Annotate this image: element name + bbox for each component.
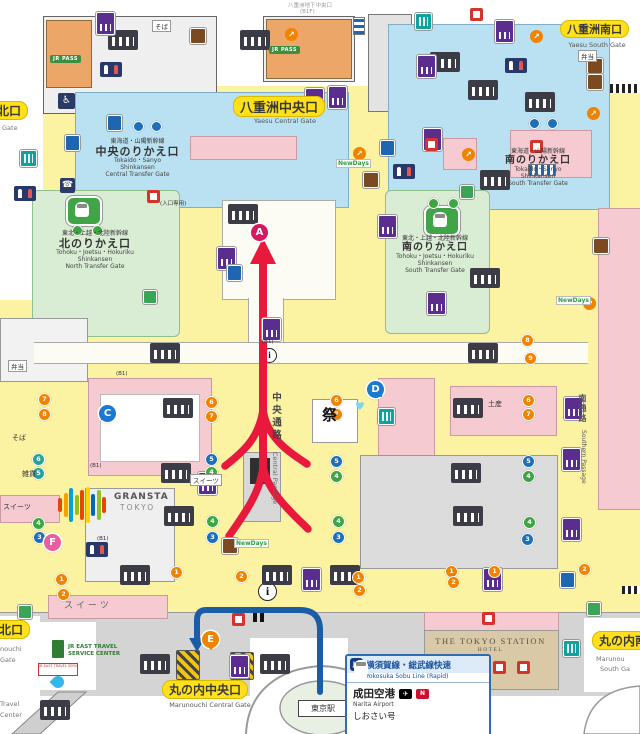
travel-center-logo: JR-EAST TRAVEL SERVICE CENTER bbox=[38, 663, 78, 676]
stairs-icon bbox=[451, 463, 481, 483]
restroom-icon bbox=[14, 186, 36, 201]
stairs-icon bbox=[525, 92, 555, 112]
destination-jp: 成田空港 bbox=[353, 686, 395, 701]
map-label: NewDays bbox=[336, 159, 371, 168]
map-label: スイーツ bbox=[190, 474, 222, 486]
platform-number-badge: 4 bbox=[330, 470, 343, 483]
gate-label-yaesu-north: 北口 bbox=[0, 101, 28, 120]
shop-icon bbox=[232, 613, 245, 626]
route-red-arrowhead bbox=[250, 238, 276, 264]
platform-stairs-icon bbox=[230, 655, 249, 678]
map-label: NewDays bbox=[234, 539, 269, 548]
coin-locker-icon bbox=[563, 640, 580, 657]
gate-label-marunouchi-north-en2: Gate bbox=[0, 656, 16, 664]
line-name-en: Yokosuka Sobu Line (Rapid) bbox=[347, 673, 489, 683]
tokyo-station-dome-label: 東京駅 bbox=[298, 700, 348, 717]
stairs-icon bbox=[228, 204, 258, 224]
stairs-icon bbox=[161, 463, 191, 483]
shop-icon bbox=[493, 661, 506, 674]
platform-stairs-icon bbox=[96, 12, 115, 35]
airplane-icon: ✈ bbox=[399, 689, 412, 699]
platform-number-badge: 2 bbox=[578, 563, 591, 576]
platform-stairs-icon bbox=[302, 568, 321, 591]
gate-label-marunouchi-central-en: Marunouchi Central Gate bbox=[150, 701, 270, 709]
route-marker: C bbox=[99, 405, 116, 422]
platform-number-badge: 6 bbox=[32, 453, 45, 466]
platform-number-badge: 6 bbox=[522, 394, 535, 407]
ticket-machine-icon bbox=[560, 572, 575, 588]
southern-passage-label-en: Southern Passage bbox=[580, 430, 587, 484]
platform-number-badge: 4 bbox=[206, 515, 219, 528]
bento-shop-icon bbox=[593, 238, 609, 254]
tokyo-station-floor-map: ↗↗↗↗↗↗ 676778678953533534444444651212121… bbox=[0, 0, 640, 734]
map-label: 祭 bbox=[322, 404, 337, 425]
map-label: スイーツ bbox=[64, 598, 112, 611]
gransta-logo-icon bbox=[58, 486, 106, 524]
platform-number-badge: 1 bbox=[55, 573, 68, 586]
ticket-machine-icon bbox=[107, 115, 122, 131]
restroom-icon bbox=[505, 58, 527, 73]
bento-shop-icon bbox=[363, 172, 379, 188]
stairs-icon bbox=[240, 30, 270, 50]
map-label: そば bbox=[12, 433, 26, 443]
gate-label-yaesu-south: 八重洲南口 bbox=[560, 20, 629, 38]
shop-icon bbox=[482, 612, 495, 625]
tsc-line1: JR EAST TRAVEL bbox=[68, 644, 117, 650]
shop-icon bbox=[470, 8, 483, 21]
ticket-machine-icon bbox=[380, 140, 395, 156]
platform-number-badge: 5 bbox=[522, 455, 535, 468]
platform-number-badge: 2 bbox=[235, 570, 248, 583]
transfer-gate-tohoku-south: 東北・上越・北陸新幹線 南のりかえ口 Tohoku・Joetsu・Hokurik… bbox=[375, 235, 495, 275]
gate-label-yaesu-central: 八重洲中央口 bbox=[233, 96, 325, 117]
gransta-wordmark-sub: TOKYO bbox=[120, 503, 155, 512]
map-label: (B1) bbox=[90, 463, 102, 469]
map-label: (B1) bbox=[262, 339, 274, 345]
gate-label-yaesu-south-en: Yaesu South Gate bbox=[552, 41, 640, 49]
gate-en: Central Transfer Gate bbox=[60, 172, 215, 179]
elevator-circle-icon bbox=[529, 118, 540, 129]
platform-stairs-icon bbox=[262, 318, 281, 341]
nex-train-icon: N bbox=[416, 689, 429, 699]
map-label: (入口専用) bbox=[160, 199, 186, 207]
left-edge-center: Center bbox=[0, 711, 22, 719]
gate-en: North Transfer Gate bbox=[30, 264, 160, 271]
transfer-gate-tokaido-south: 東海道・山陽新幹線 南のりかえ口 Tokaido・Sanyo Shinkanse… bbox=[478, 148, 598, 188]
gate-en: South Transfer Gate bbox=[478, 181, 598, 188]
stairs-icon bbox=[468, 343, 498, 363]
gate-label-yaesu-central-en: Yaesu Central Gate bbox=[225, 117, 345, 125]
stairs-icon bbox=[120, 565, 150, 585]
stairs-icon bbox=[40, 700, 70, 720]
stairs-icon bbox=[468, 80, 498, 100]
platform-stairs-icon bbox=[495, 20, 514, 43]
elevator-circle-icon bbox=[448, 198, 459, 209]
platform-number-badge: 7 bbox=[205, 410, 218, 423]
platform-number-badge: 8 bbox=[521, 334, 534, 347]
bento-shop-icon bbox=[190, 28, 206, 44]
platform-stairs-icon bbox=[562, 518, 581, 541]
service-icon bbox=[587, 602, 601, 616]
service-icon bbox=[460, 185, 474, 199]
central-passage-label: 中央通路 bbox=[268, 392, 282, 442]
route-marker: A bbox=[251, 224, 268, 241]
stairs-icon bbox=[164, 506, 194, 526]
coin-locker-icon bbox=[20, 150, 37, 167]
platform-number-badge: 1 bbox=[352, 571, 365, 584]
gate-label-marunouchi-north: 北口 bbox=[0, 620, 30, 639]
gate-label-marunouchi-south-en1: Marunou bbox=[596, 655, 625, 663]
info-box-header: JO 横須賀線・総武線快速 bbox=[347, 656, 489, 673]
stairs-icon bbox=[453, 398, 483, 418]
south-dome-outline bbox=[584, 686, 640, 734]
left-edge-travel: Travel bbox=[0, 700, 19, 708]
stairs-icon bbox=[163, 398, 193, 418]
route-marker: D bbox=[367, 381, 384, 398]
route-marker: E bbox=[202, 631, 219, 648]
southern-passage-label: 南通路 bbox=[577, 394, 588, 424]
train-name: しおさい号 bbox=[347, 708, 489, 722]
coin-locker-icon bbox=[378, 408, 395, 425]
line-name-jp: 横須賀線・総武線快速 bbox=[366, 659, 451, 671]
service-icon bbox=[18, 605, 32, 619]
route-red bbox=[225, 238, 308, 536]
gransta-wordmark: GRANSTA bbox=[114, 492, 169, 502]
shop-icon bbox=[147, 190, 160, 203]
gate-en: South Transfer Gate bbox=[375, 268, 495, 275]
gate-label-marunouchi-central: 丸の内中央口 bbox=[162, 680, 248, 699]
escalator-arrow-icon: ↗ bbox=[285, 28, 298, 41]
gate-label-marunouchi-north-en1: nouchi bbox=[0, 645, 22, 653]
map-label: 雑貨 bbox=[22, 469, 36, 479]
platform-stairs-icon bbox=[562, 448, 581, 471]
platform-number-badge: 7 bbox=[38, 393, 51, 406]
elevator-circle-icon bbox=[428, 198, 439, 209]
hotel-name-sub: HOTEL bbox=[424, 647, 557, 653]
platform-number-badge: 5 bbox=[205, 453, 218, 466]
map-label: NewDays bbox=[556, 296, 591, 305]
map-label: 弁当 bbox=[578, 50, 597, 62]
central-passage-label-en: Central Passage bbox=[271, 452, 279, 504]
platform-stairs-icon bbox=[417, 55, 436, 78]
stairs-icon bbox=[150, 343, 180, 363]
platform-stairs-icon bbox=[427, 292, 446, 315]
elevator-circle-icon bbox=[547, 118, 558, 129]
restroom-icon bbox=[86, 542, 108, 557]
map-label: 土産 bbox=[488, 399, 502, 409]
map-label: スイーツ bbox=[3, 502, 31, 512]
platform-number-badge: 8 bbox=[38, 408, 51, 421]
platform-number-badge: 5 bbox=[330, 455, 343, 468]
stairs-icon bbox=[262, 565, 292, 585]
platform-number-badge: 6 bbox=[205, 396, 218, 409]
travel-service-center-label: JR EAST TRAVEL SERVICE CENTER bbox=[68, 644, 120, 658]
bento-shop-icon bbox=[587, 74, 603, 90]
ticket-machine-icon bbox=[227, 265, 242, 281]
platform-number-badge: 1 bbox=[488, 565, 501, 578]
escalator-arrow-icon: ↗ bbox=[587, 107, 600, 120]
destination-en: Narita Airport bbox=[347, 701, 489, 708]
transfer-gate-tokaido-central: 東海道・山陽新幹線 中央のりかえ口 Tokaido・Sanyo Shinkans… bbox=[60, 138, 215, 179]
restroom-icon bbox=[100, 62, 122, 77]
platform-number-badge: 7 bbox=[522, 408, 535, 421]
platform-number-badge: 3 bbox=[521, 533, 534, 546]
jr-pass-badge: JR PASS bbox=[50, 55, 81, 63]
elevator-circle-icon bbox=[133, 121, 144, 132]
escalator-arrow-icon: ↗ bbox=[530, 30, 543, 43]
stairs-icon bbox=[453, 506, 483, 526]
map-label: (B1) bbox=[97, 536, 109, 542]
tsc-line2: SERVICE CENTER bbox=[68, 651, 120, 657]
gate-label-marunouchi-south-en2: South Ga bbox=[600, 665, 630, 673]
gate-label-yaesu-north-en: Gate bbox=[2, 124, 18, 132]
platform-number-badge: 4 bbox=[523, 516, 536, 529]
jr-pass-badge: JR PASS bbox=[269, 46, 300, 54]
map-label: そば bbox=[152, 20, 171, 32]
route-marker: F bbox=[44, 534, 61, 551]
service-icon bbox=[143, 290, 157, 304]
hotel-name: THE TOKYO STATION bbox=[424, 636, 557, 646]
platform-number-badge: 9 bbox=[524, 352, 537, 365]
stairs-icon bbox=[260, 654, 290, 674]
yokosuka-line-info-box: JO 横須賀線・総武線快速 Yokosuka Sobu Line (Rapid)… bbox=[345, 654, 491, 734]
platform-number-badge: 3 bbox=[332, 531, 345, 544]
gate-label-marunouchi-south: 丸の内南口 bbox=[592, 631, 640, 650]
platform-number-badge: 1 bbox=[170, 566, 183, 579]
shop-icon bbox=[517, 661, 530, 674]
platform-number-badge: 2 bbox=[447, 576, 460, 589]
platform-number-badge: 3 bbox=[206, 531, 219, 544]
stairs-icon bbox=[140, 654, 170, 674]
coin-locker-icon bbox=[415, 13, 432, 30]
platform-number-badge: 2 bbox=[353, 584, 366, 597]
elevator-circle-icon bbox=[151, 121, 162, 132]
shop-icon bbox=[425, 138, 438, 151]
transfer-gate-tohoku-north: 東北・上越・北陸新幹線 北のりかえ口 Tohoku・Joetsu・Hokurik… bbox=[30, 230, 160, 271]
platform-number-badge: 4 bbox=[32, 517, 45, 530]
escalator-arrow-icon: ↗ bbox=[462, 148, 475, 161]
platform-number-badge: 4 bbox=[332, 515, 345, 528]
map-label: (B1) bbox=[116, 371, 128, 377]
nursing-heart-icon: ♥ bbox=[355, 400, 365, 413]
platform-stairs-icon bbox=[328, 86, 347, 109]
map-label: 弁当 bbox=[8, 360, 27, 372]
travel-center-flag-icon bbox=[52, 640, 64, 658]
restroom-icon bbox=[393, 164, 415, 179]
platform-number-badge: 4 bbox=[522, 470, 535, 483]
